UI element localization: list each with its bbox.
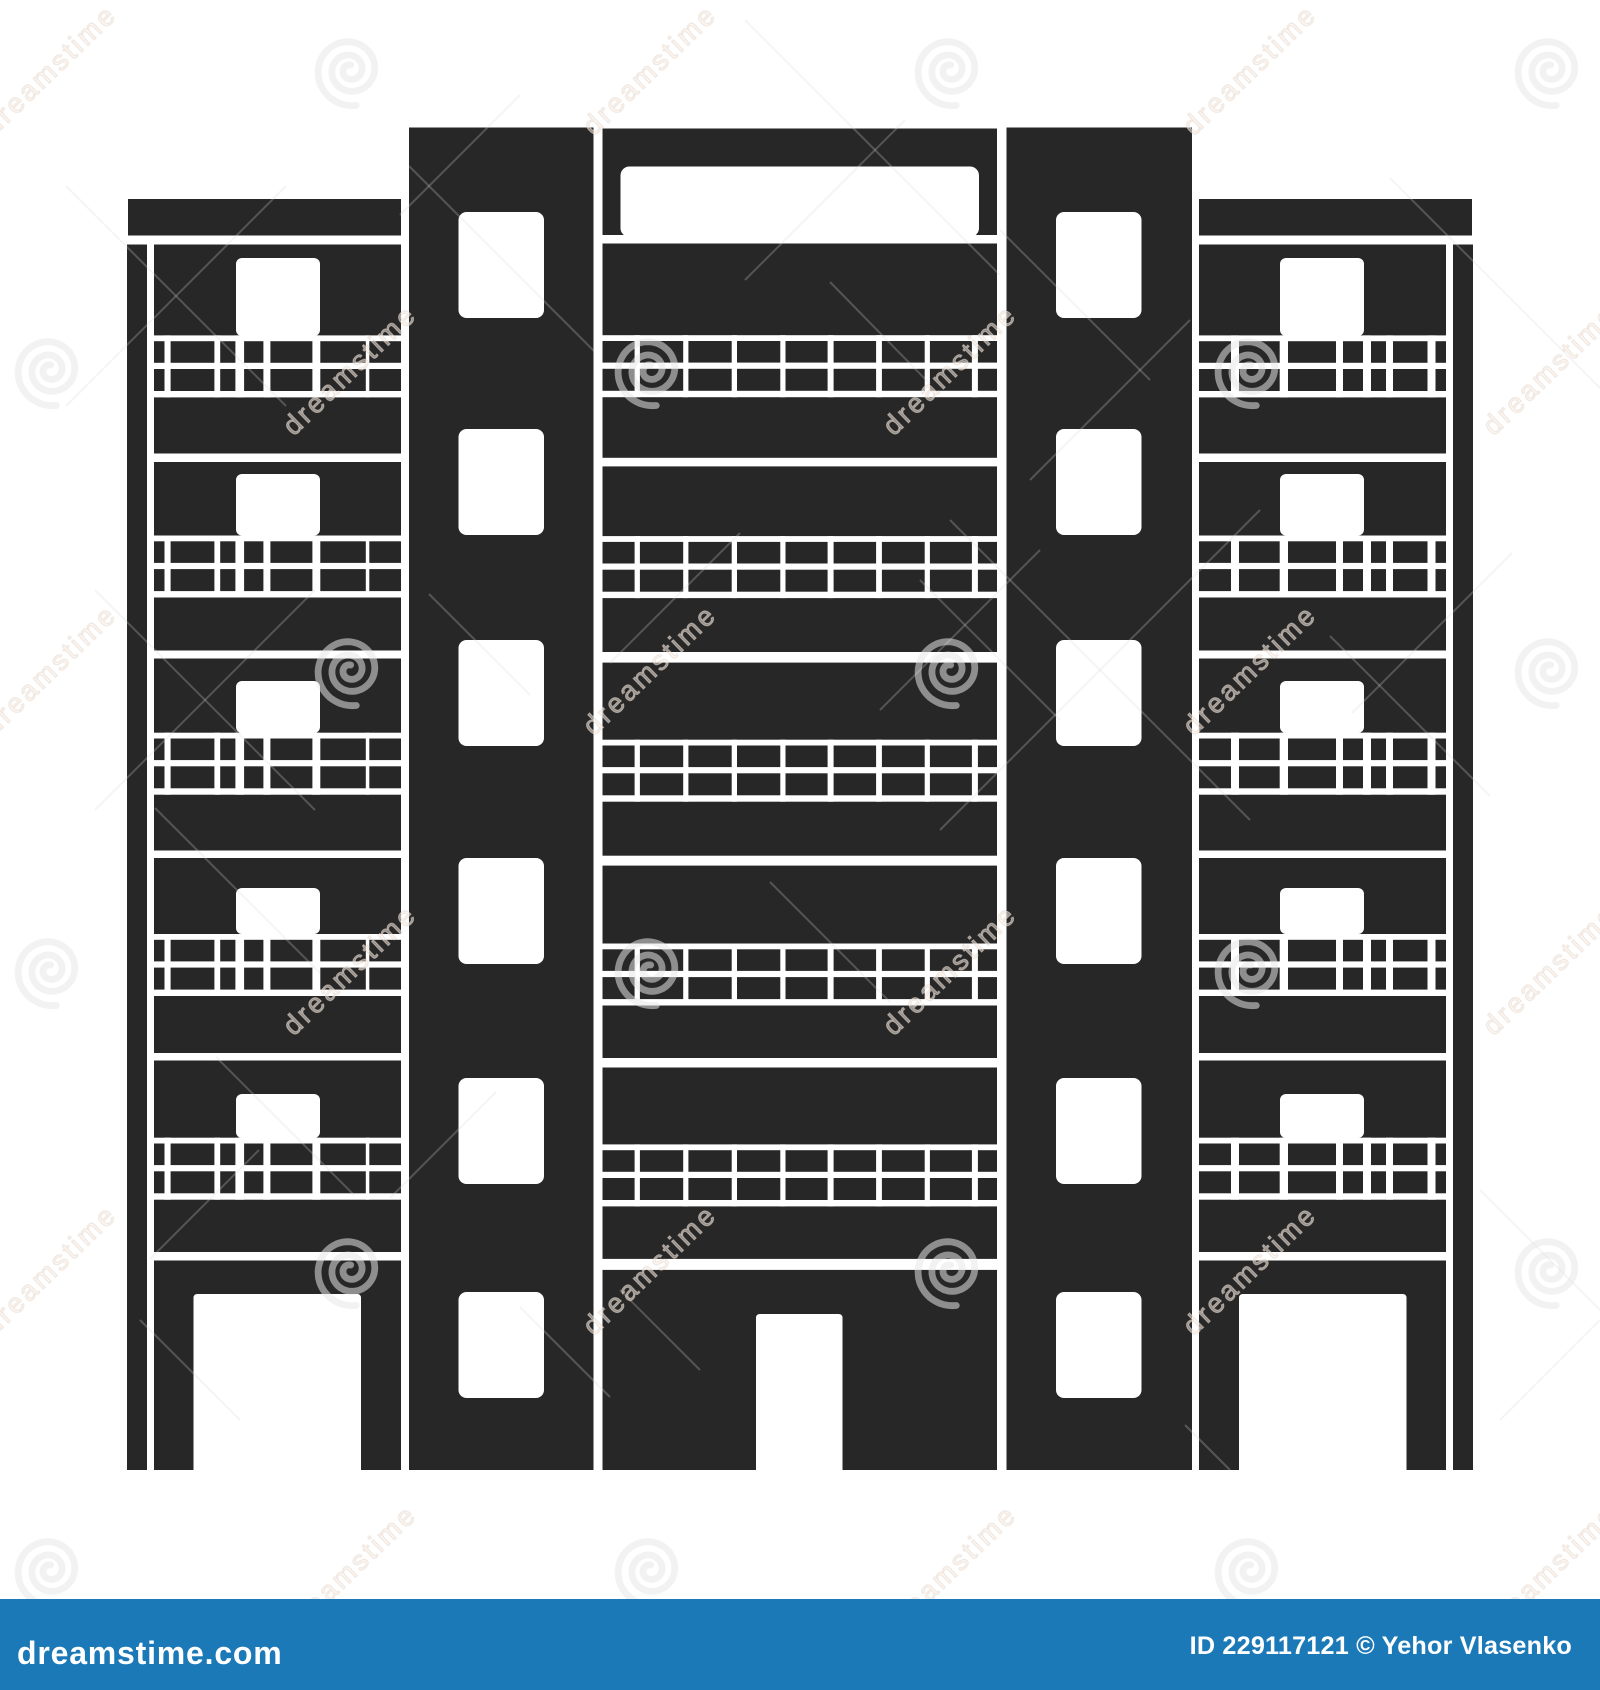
svg-text:dreamstime.com: dreamstime.com (17, 1635, 283, 1671)
svg-text:ID 229117121 © Yehor Vlasenko: ID 229117121 © Yehor Vlasenko (1190, 1632, 1572, 1660)
